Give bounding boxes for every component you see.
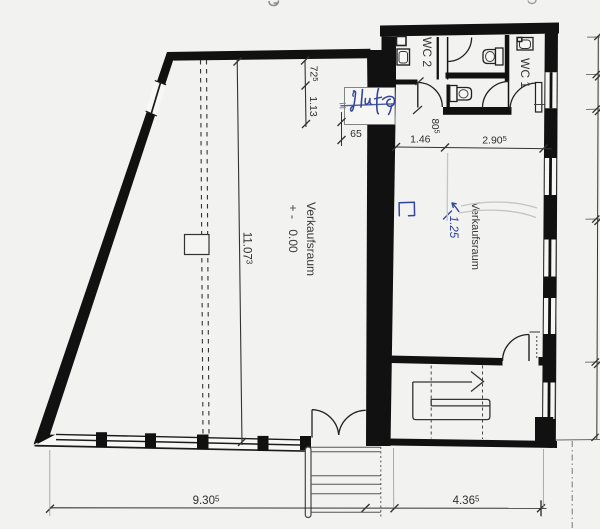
svg-text:1.25: 1.25 — [447, 216, 459, 239]
svg-text:0.00: 0.00 — [286, 229, 300, 253]
svg-text:65: 65 — [350, 128, 362, 140]
svg-text:+: + — [286, 204, 300, 211]
svg-text:-: - — [286, 215, 300, 219]
svg-text:Verkaufsraum: Verkaufsraum — [469, 202, 481, 270]
svg-text:WC 2: WC 2 — [420, 37, 434, 67]
svg-text:1.13: 1.13 — [307, 96, 319, 117]
svg-text:Verkaufsraum: Verkaufsraum — [304, 202, 318, 276]
svg-text:1.46: 1.46 — [410, 134, 431, 146]
svg-text:WC 1: WC 1 — [518, 58, 532, 88]
